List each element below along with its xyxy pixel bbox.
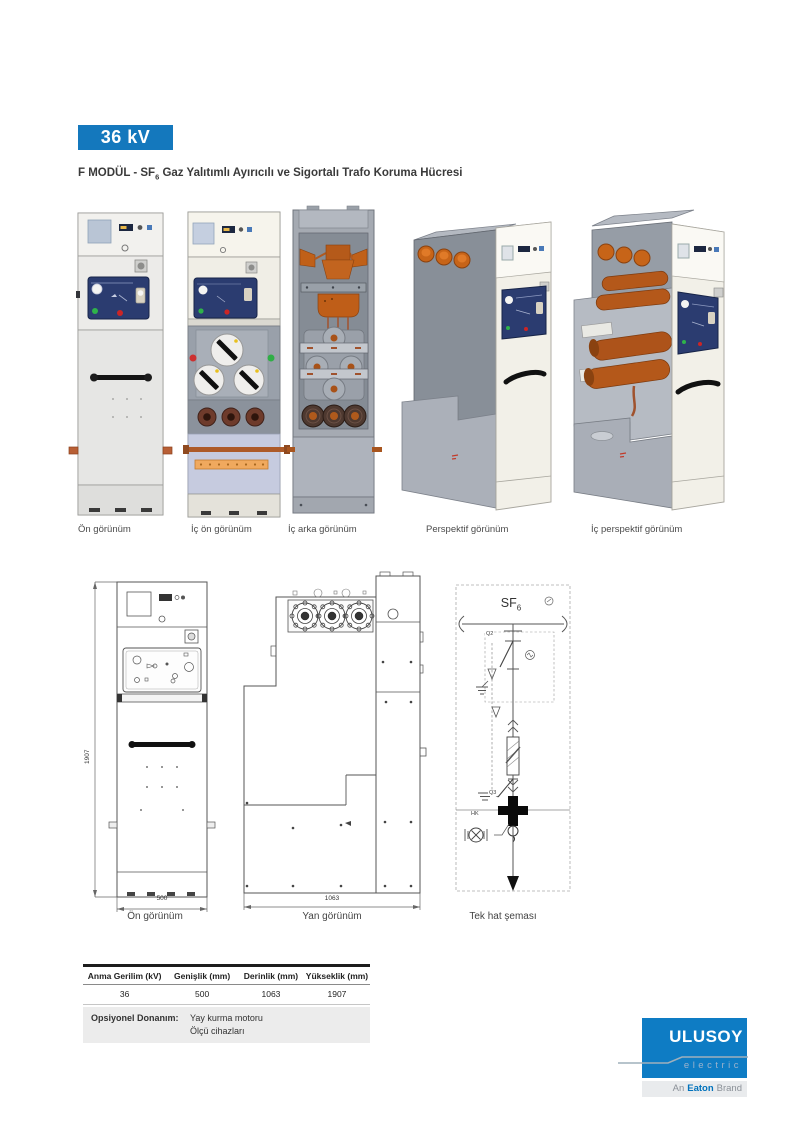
caption-single-line-diagram: Tek hat şeması: [458, 911, 548, 922]
product-view-internal-perspective: [562, 196, 746, 525]
caption-internal-front-view: İç ön görünüm: [191, 524, 252, 535]
earth-switch-label: Q3: [488, 790, 497, 796]
datasheet-page: 36 kV F MODÜL - SF6 Gaz Yalıtımlı Ayırıc…: [0, 0, 800, 1130]
internal-back-view-image: [287, 197, 390, 519]
eaton-brand-tagline: AnEatonBrand: [642, 1081, 747, 1097]
side-drawing-image: [233, 570, 453, 918]
product-view-front: [63, 203, 185, 526]
value-depth: 1063: [238, 989, 304, 999]
caption-perspective-view: Perspektif görünüm: [426, 524, 508, 535]
value-width: 500: [166, 989, 238, 999]
sf6-gas-label-prefix: SF: [501, 596, 517, 610]
value-height: 1907: [304, 989, 370, 999]
product-title-prefix: F MODÜL - SF: [78, 167, 155, 179]
product-title: F MODÜL - SF6 Gaz Yalıtımlı Ayırıcılı ve…: [78, 167, 638, 181]
sf6-gas-label: SF6: [452, 596, 570, 613]
ulusoy-logo: ULUSOY electric AnEatonBrand: [618, 1018, 748, 1098]
optional-item-spring-motor: Yay kurma motoru: [190, 1013, 263, 1023]
caption-internal-back-view: İç arka görünüm: [288, 524, 357, 535]
electric-wordmark: electric: [684, 1060, 742, 1071]
optional-equipment-label: Opsiyonel Donanım:: [91, 1013, 190, 1036]
header-rated-voltage: Anma Gerilim (kV): [83, 971, 166, 981]
header-depth: Derinlik (mm): [238, 971, 304, 981]
optional-item-measuring-devices: Ölçü cihazları: [190, 1026, 263, 1036]
header-height: Yükseklik (mm): [304, 971, 370, 981]
product-view-perspective: [396, 206, 560, 525]
tagline-suffix: Brand: [717, 1083, 742, 1094]
caption-internal-perspective-view: İç perspektif görünüm: [591, 524, 682, 535]
header-width: Genişlik (mm): [166, 971, 238, 981]
eaton-wordmark: Eaton: [687, 1083, 713, 1094]
value-rated-voltage: 36: [83, 989, 166, 999]
voltage-badge: 36 kV: [78, 125, 173, 150]
caption-front-view: Ön görünüm: [78, 524, 131, 535]
width-dimension-label: 500: [147, 895, 177, 902]
drawing-side-view: [233, 570, 453, 923]
depth-dimension-label: 1063: [317, 895, 347, 902]
single-line-diagram-image: [452, 583, 577, 895]
ulusoy-w ordmark: ULUSOY: [669, 1027, 743, 1047]
sf6-gas-label-subscript: 6: [517, 604, 521, 613]
caption-front-drawing: Ön görünüm: [110, 911, 200, 922]
perspective-view-image: [396, 206, 560, 520]
caption-side-drawing: Yan görünüm: [287, 911, 377, 922]
spec-table-header-row: Anma Gerilim (kV) Genişlik (mm) Derinlik…: [83, 967, 370, 985]
optional-equipment-row: Opsiyonel Donanım: Yay kurma motoru Ölçü…: [83, 1007, 370, 1043]
product-view-internal-front: [183, 208, 290, 525]
internal-perspective-view-image: [562, 196, 746, 520]
optional-equipment-items: Yay kurma motoru Ölçü cihazları: [190, 1013, 263, 1036]
front-drawing-image: [85, 572, 220, 920]
tagline-prefix: An: [673, 1083, 685, 1094]
disconnector-label: Q2: [485, 631, 494, 637]
hk-label: HK: [470, 811, 480, 817]
drawing-front-view: [85, 572, 220, 925]
spec-table-value-row: 36 500 1063 1907: [83, 985, 370, 1005]
front-view-image: [63, 203, 185, 521]
spec-table: Anma Gerilim (kV) Genişlik (mm) Derinlik…: [83, 964, 370, 1043]
drawing-single-line-diagram: [452, 583, 577, 900]
product-title-suffix: Gaz Yalıtımlı Ayırıcılı ve Sigortalı Tra…: [159, 167, 462, 179]
product-view-internal-back: [287, 197, 390, 524]
height-dimension-label: 1907: [84, 750, 91, 764]
internal-front-view-image: [183, 208, 290, 520]
